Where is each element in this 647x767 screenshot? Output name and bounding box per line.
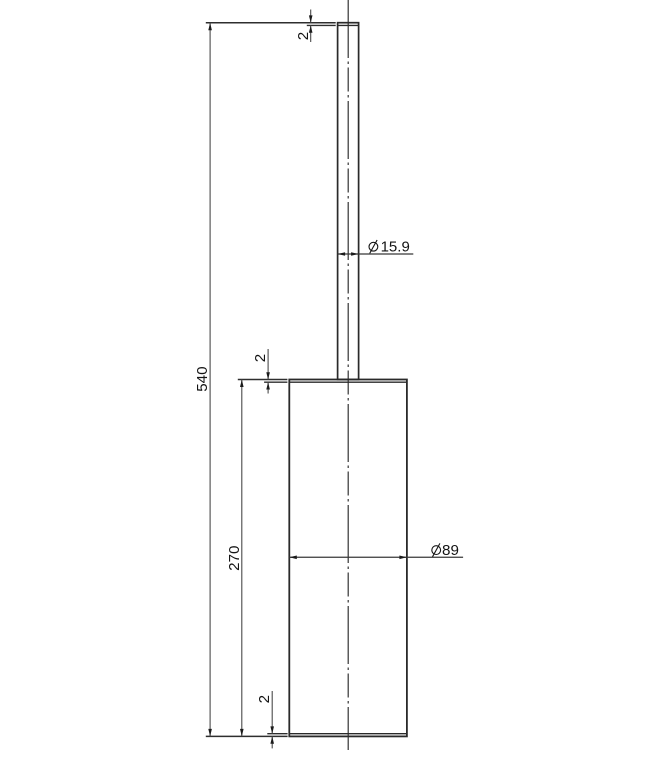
svg-text:89: 89 (442, 542, 459, 559)
svg-text:270: 270 (226, 546, 243, 571)
svg-text:2: 2 (252, 354, 269, 362)
svg-text:2: 2 (295, 32, 312, 40)
svg-text:2: 2 (256, 695, 273, 703)
svg-text:540: 540 (194, 366, 211, 391)
svg-text:15.9: 15.9 (381, 238, 410, 255)
